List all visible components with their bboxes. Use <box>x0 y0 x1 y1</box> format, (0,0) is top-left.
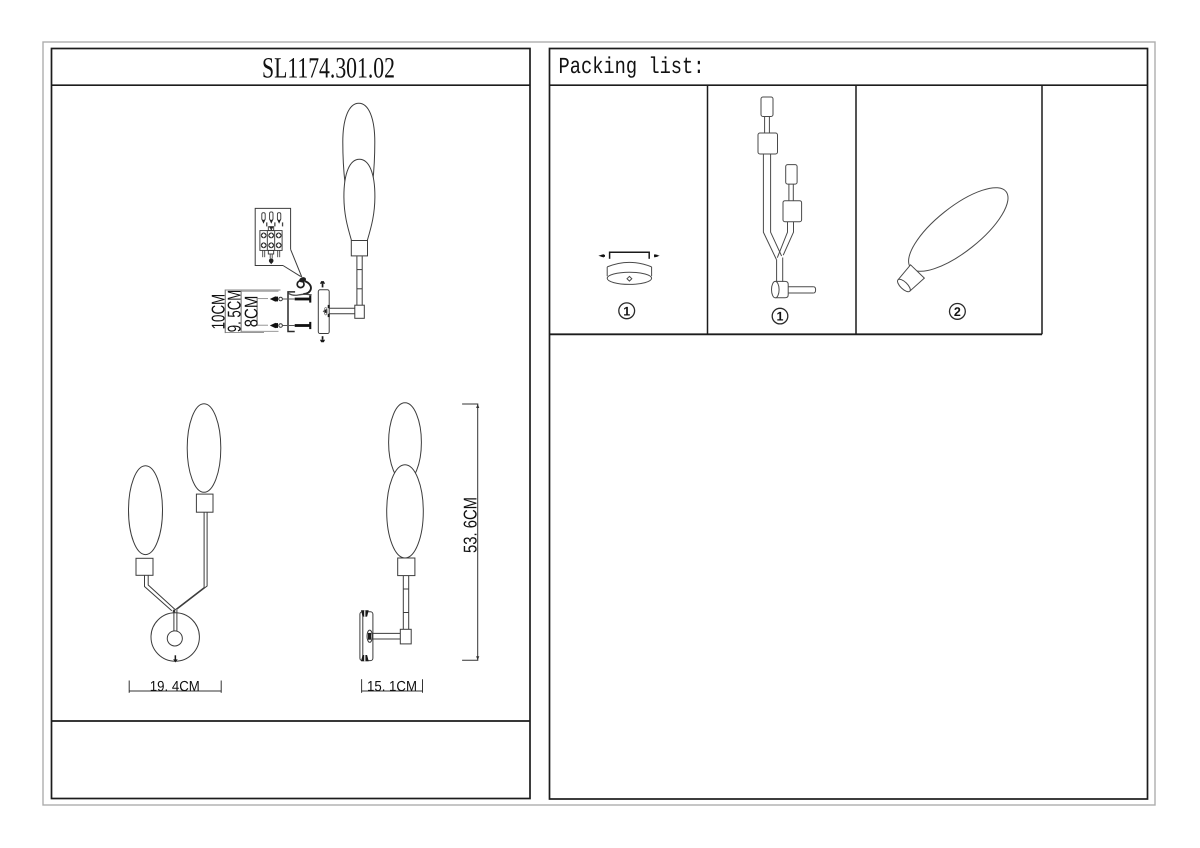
svg-text:1: 1 <box>777 310 784 324</box>
svg-text:15. 1CM: 15. 1CM <box>367 679 417 695</box>
svg-text:2: 2 <box>954 305 961 319</box>
svg-text:53. 6CM: 53. 6CM <box>460 497 481 553</box>
svg-text:1: 1 <box>623 304 630 318</box>
svg-text:SL1174.301.02: SL1174.301.02 <box>262 53 395 85</box>
svg-text:8CM: 8CM <box>241 296 262 328</box>
svg-text:19. 4CM: 19. 4CM <box>150 679 200 695</box>
svg-text:Packing list:: Packing list: <box>559 54 705 80</box>
